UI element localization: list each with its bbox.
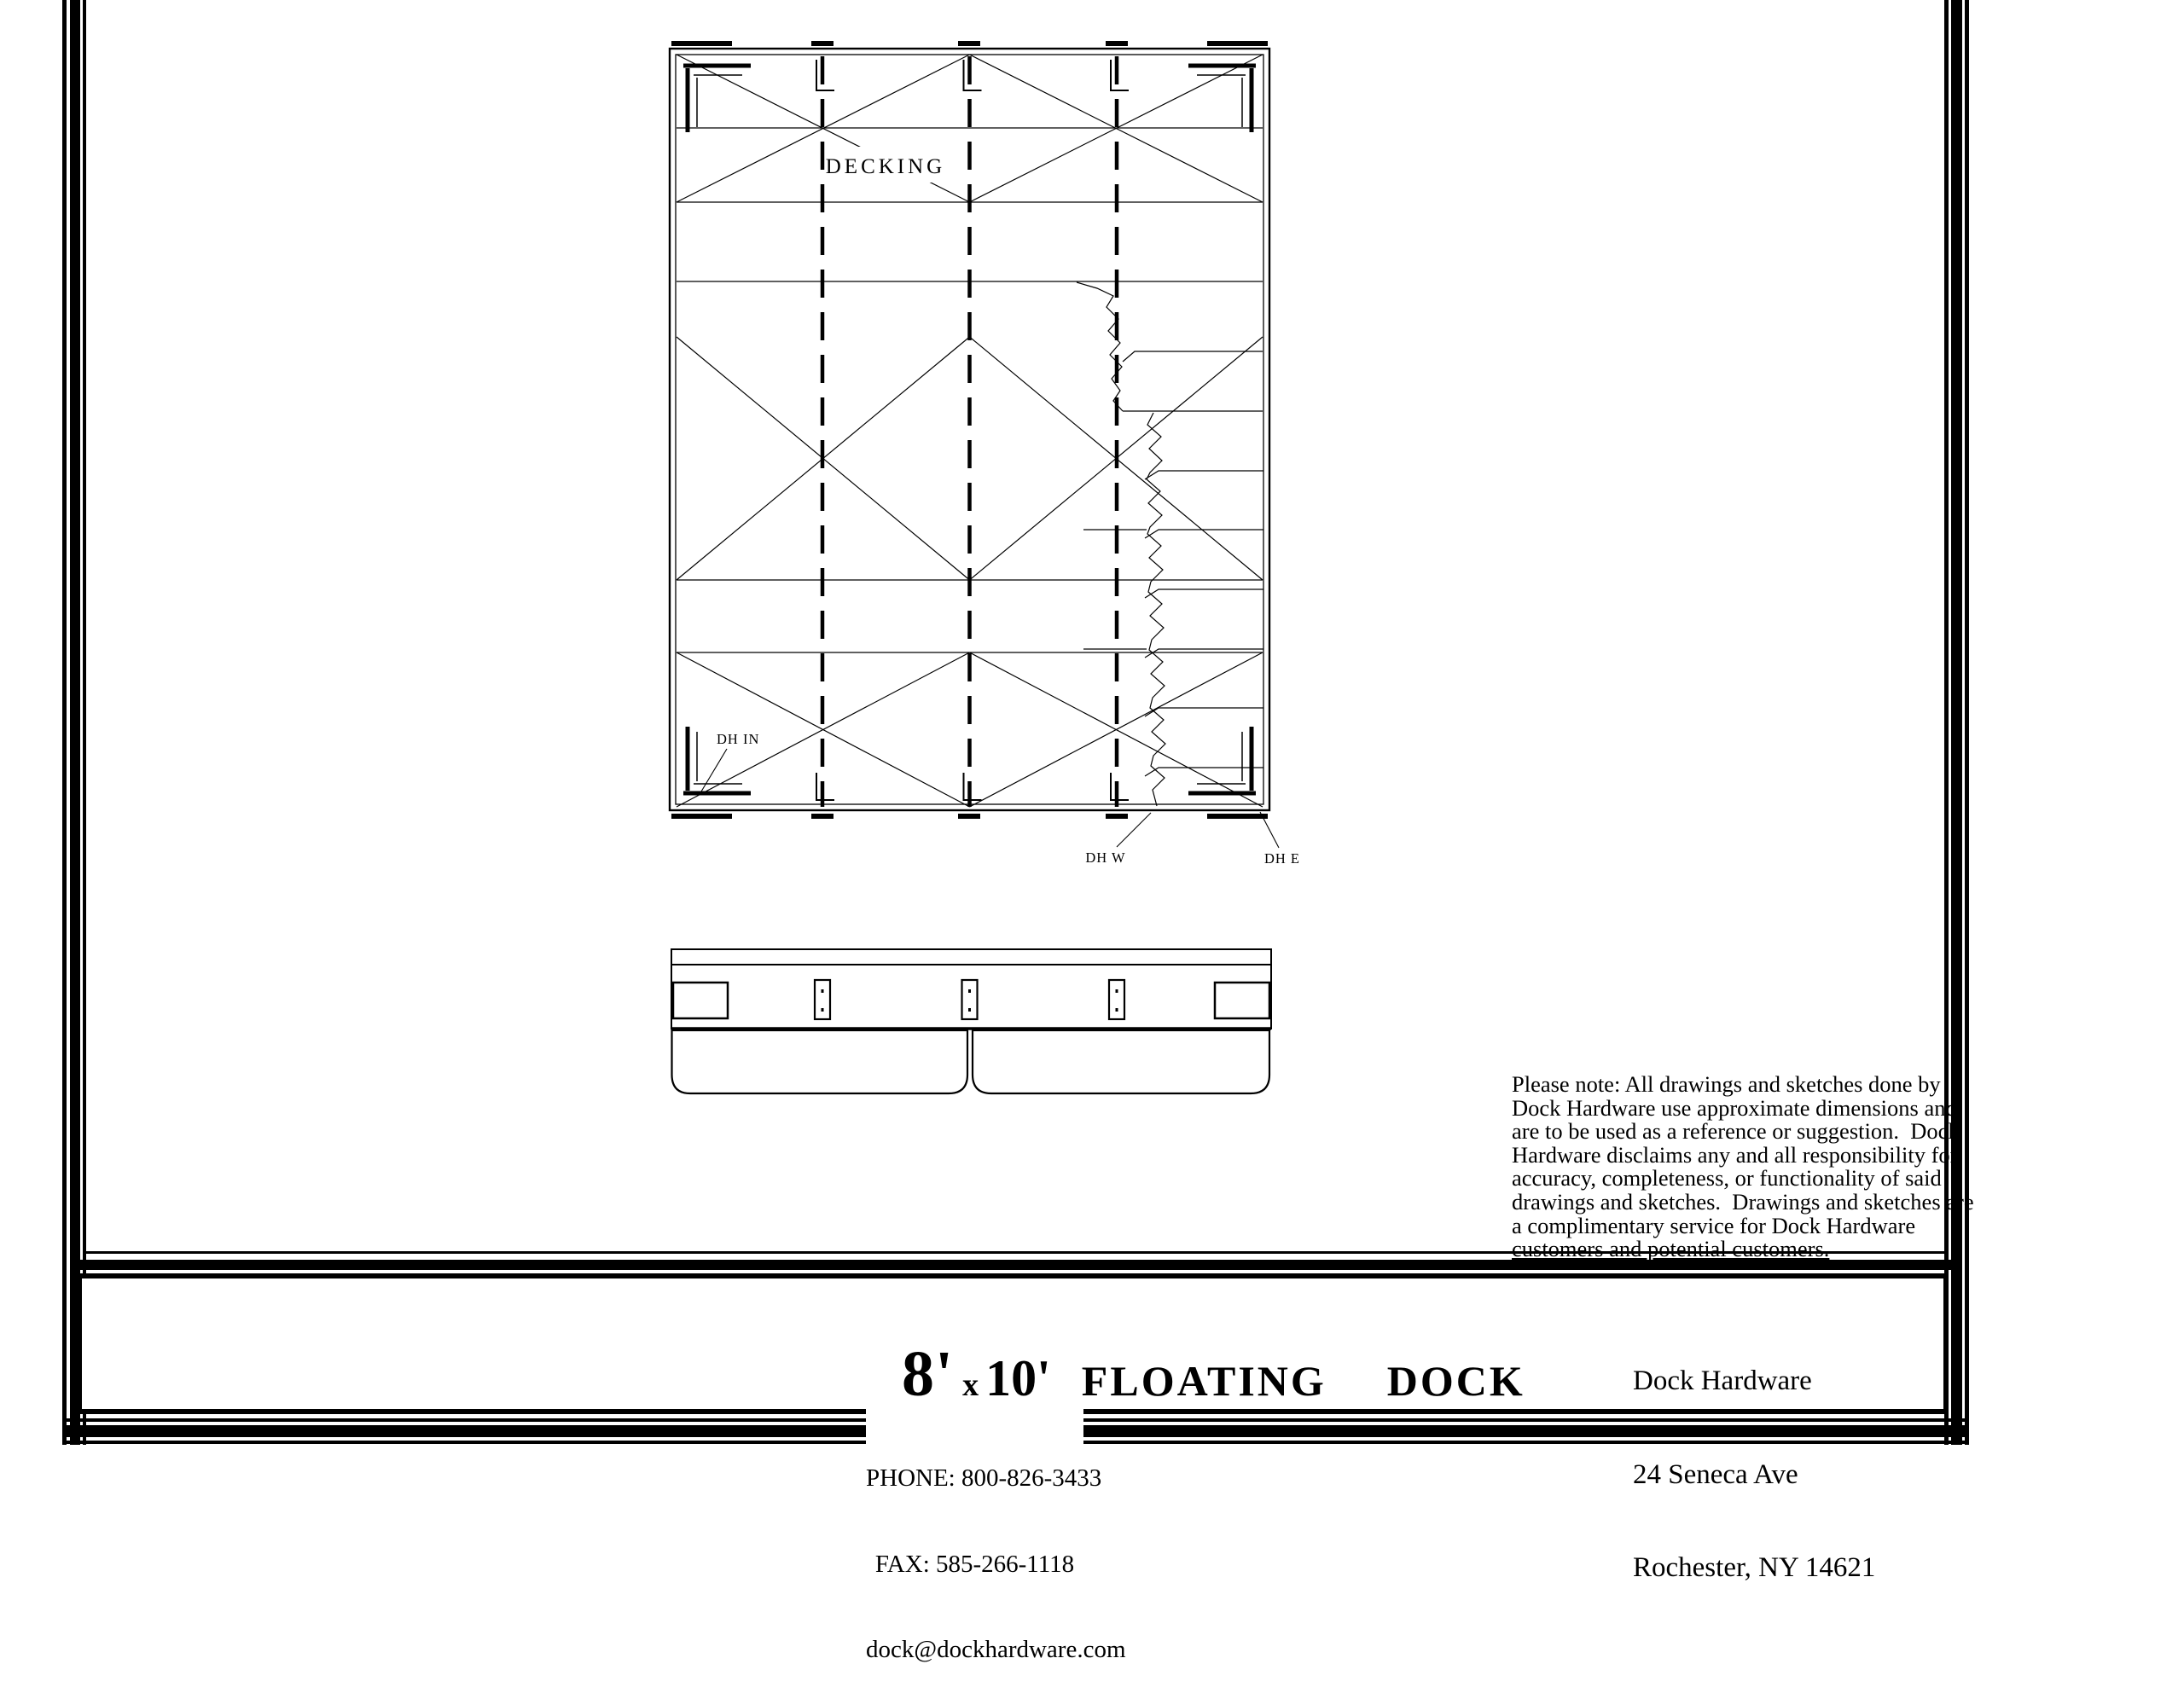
company-address1: 24 Seneca Ave bbox=[1633, 1459, 1875, 1491]
scanned-drawing-page: { "plan_view": { "decking_label": "DECKI… bbox=[0, 0, 2184, 1516]
fax-number: FAX: 585-266-1118 bbox=[866, 1551, 1083, 1580]
phone-number: PHONE: 800-826-3433 bbox=[866, 1464, 1083, 1493]
side-deck-band bbox=[671, 949, 1271, 965]
disclaimer-line: Hardware disclaims any and all responsib… bbox=[1512, 1144, 1974, 1168]
title-size-secondary: 10' bbox=[985, 1349, 1051, 1408]
page-border-left-inner bbox=[83, 0, 86, 1445]
disclaimer-line: accuracy, completeness, or functionality… bbox=[1512, 1167, 1974, 1191]
disclaimer-line: Please note: All drawings and sketches d… bbox=[1512, 1073, 1974, 1097]
dh-e-label: DH E bbox=[1264, 850, 1300, 867]
page-border-left-thick bbox=[70, 0, 80, 1445]
disclaimer-note: Please note: All drawings and sketches d… bbox=[1512, 1073, 1974, 1261]
disclaimer-line-underlined: customers and potential customers. bbox=[1512, 1238, 1974, 1261]
dock-technical-drawing: DECKING DH IN DH W DH E bbox=[597, 26, 1382, 1126]
disclaimer-line: drawings and sketches. Drawings and sket… bbox=[1512, 1191, 1974, 1215]
leader-lines bbox=[701, 749, 1279, 848]
page-border-left-outer bbox=[62, 0, 67, 1445]
footer-contact-block: PHONE: 800-826-3433 FAX: 585-266-1118 do… bbox=[866, 1403, 1083, 1497]
disclaimer-line: a complimentary service for Dock Hardwar… bbox=[1512, 1215, 1974, 1238]
corner-brackets bbox=[683, 66, 1256, 793]
email-address: dock@dockhardware.com bbox=[866, 1636, 1083, 1665]
float-right bbox=[973, 1030, 1269, 1093]
side-elevation-view bbox=[671, 949, 1271, 1093]
title-product-name: FLOATING DOCK bbox=[1082, 1356, 1525, 1406]
decking-break-lines bbox=[1077, 282, 1263, 806]
title-size-primary: 8' bbox=[902, 1337, 954, 1412]
drawing-title: 8' x 10' FLOATING DOCK bbox=[902, 1337, 1525, 1412]
dh-in-label: DH IN bbox=[717, 731, 759, 747]
disclaimer-line: Dock Hardware use approximate dimensions… bbox=[1512, 1097, 1974, 1121]
dh-w-label: DH W bbox=[1085, 849, 1125, 866]
side-stringer-plates bbox=[815, 980, 1124, 1019]
title-times-symbol: x bbox=[962, 1366, 979, 1404]
company-name: Dock Hardware bbox=[1633, 1365, 1875, 1397]
decking-label: DECKING bbox=[826, 155, 946, 178]
side-end-plate-right bbox=[1215, 983, 1269, 1018]
company-address-block: Dock Hardware 24 Seneca Ave Rochester, N… bbox=[1633, 1303, 1875, 1615]
disclaimer-line: are to be used as a reference or suggest… bbox=[1512, 1120, 1974, 1144]
float-left bbox=[672, 1030, 968, 1093]
company-address2: Rochester, NY 14621 bbox=[1633, 1552, 1875, 1584]
side-end-plate-left bbox=[673, 983, 728, 1018]
